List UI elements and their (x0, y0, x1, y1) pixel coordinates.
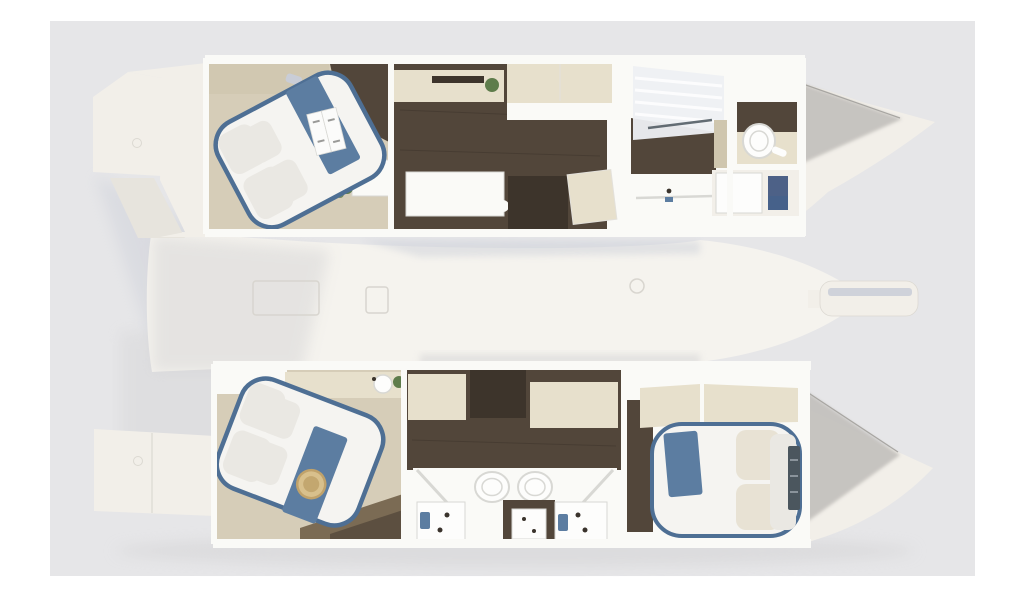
port-hull-interior (203, 55, 806, 237)
midship-dark-panel (470, 370, 526, 418)
stbd-forward-cabin (627, 370, 807, 544)
port-stern-fitting (133, 139, 142, 148)
wall-corridor-shower (621, 60, 629, 232)
sink-faucet-left (445, 513, 450, 518)
midship-cabinet-right (530, 382, 618, 428)
deck-round-hatch (630, 279, 644, 293)
wall-cabin-mid (401, 368, 407, 544)
port-toilet-room (733, 84, 801, 168)
vanity-faucet (372, 377, 376, 381)
deck-shadow-upper (360, 240, 700, 257)
nav-desk-dark (508, 176, 568, 230)
storage-blue-crate-lower (768, 196, 788, 210)
fwd-cabinet-left (640, 384, 700, 428)
sink-faucet-right (576, 513, 581, 518)
bowsprit (808, 281, 918, 316)
sink-faucet-dot (667, 189, 672, 194)
unit-knob (532, 529, 536, 533)
port-aft-cabin (207, 64, 394, 237)
port-corridor (392, 59, 617, 231)
wall-forward-bulkhead (803, 364, 810, 544)
stbd-midship (405, 368, 623, 544)
render-canvas (0, 0, 1024, 600)
wall-forward-bulkhead (799, 58, 806, 236)
port-storage-nook (712, 170, 800, 216)
wall-mid-fwd (621, 368, 627, 544)
starboard-hull (94, 361, 933, 548)
stbd-hull-interior (208, 361, 811, 548)
wall-shower-toilet (727, 62, 733, 232)
stbd-stern-fitting (134, 457, 143, 466)
stbd-stern-platform (94, 429, 215, 516)
bathroom-center-unit (512, 509, 546, 539)
midship-cabinet-left (408, 374, 466, 420)
unit-knob (522, 517, 526, 521)
wall-aft (211, 364, 217, 544)
stool-white (497, 200, 509, 212)
sink-soap-blue (665, 197, 673, 202)
wall-bottom (205, 229, 805, 237)
towel-blue-right (558, 514, 568, 531)
bowsprit-groove (828, 288, 912, 296)
sink-drain-right (583, 528, 588, 533)
wall-toilet-storage (731, 164, 801, 169)
wall-aft (203, 58, 209, 234)
desk-seat (567, 170, 617, 225)
wall-bottom (213, 539, 811, 548)
fwd-cabin-steps (788, 446, 800, 510)
sink-drain-left (438, 528, 443, 533)
wall-top (205, 55, 805, 64)
corridor-cabinet (406, 172, 504, 216)
catamaran-floorplan-render (0, 0, 1024, 600)
stbd-aft-cabin (208, 370, 405, 542)
fwd-bed-runner (663, 431, 702, 498)
toilet-left (475, 472, 509, 502)
aft-deck-shadow (152, 235, 330, 372)
bowsprit-tip (900, 298, 916, 310)
toilet-right (518, 472, 552, 502)
vanity-desk-slot (432, 76, 484, 83)
towel-blue-left (420, 512, 430, 529)
wall-cabin-corridor (388, 62, 394, 232)
plant-corridor (485, 78, 499, 92)
toilet (743, 124, 775, 158)
storage-white-box (716, 173, 762, 213)
wardrobe-front (507, 103, 612, 120)
fwd-cabinet-right (704, 384, 798, 424)
wall-top (213, 361, 811, 370)
vanity-sink (374, 375, 392, 393)
